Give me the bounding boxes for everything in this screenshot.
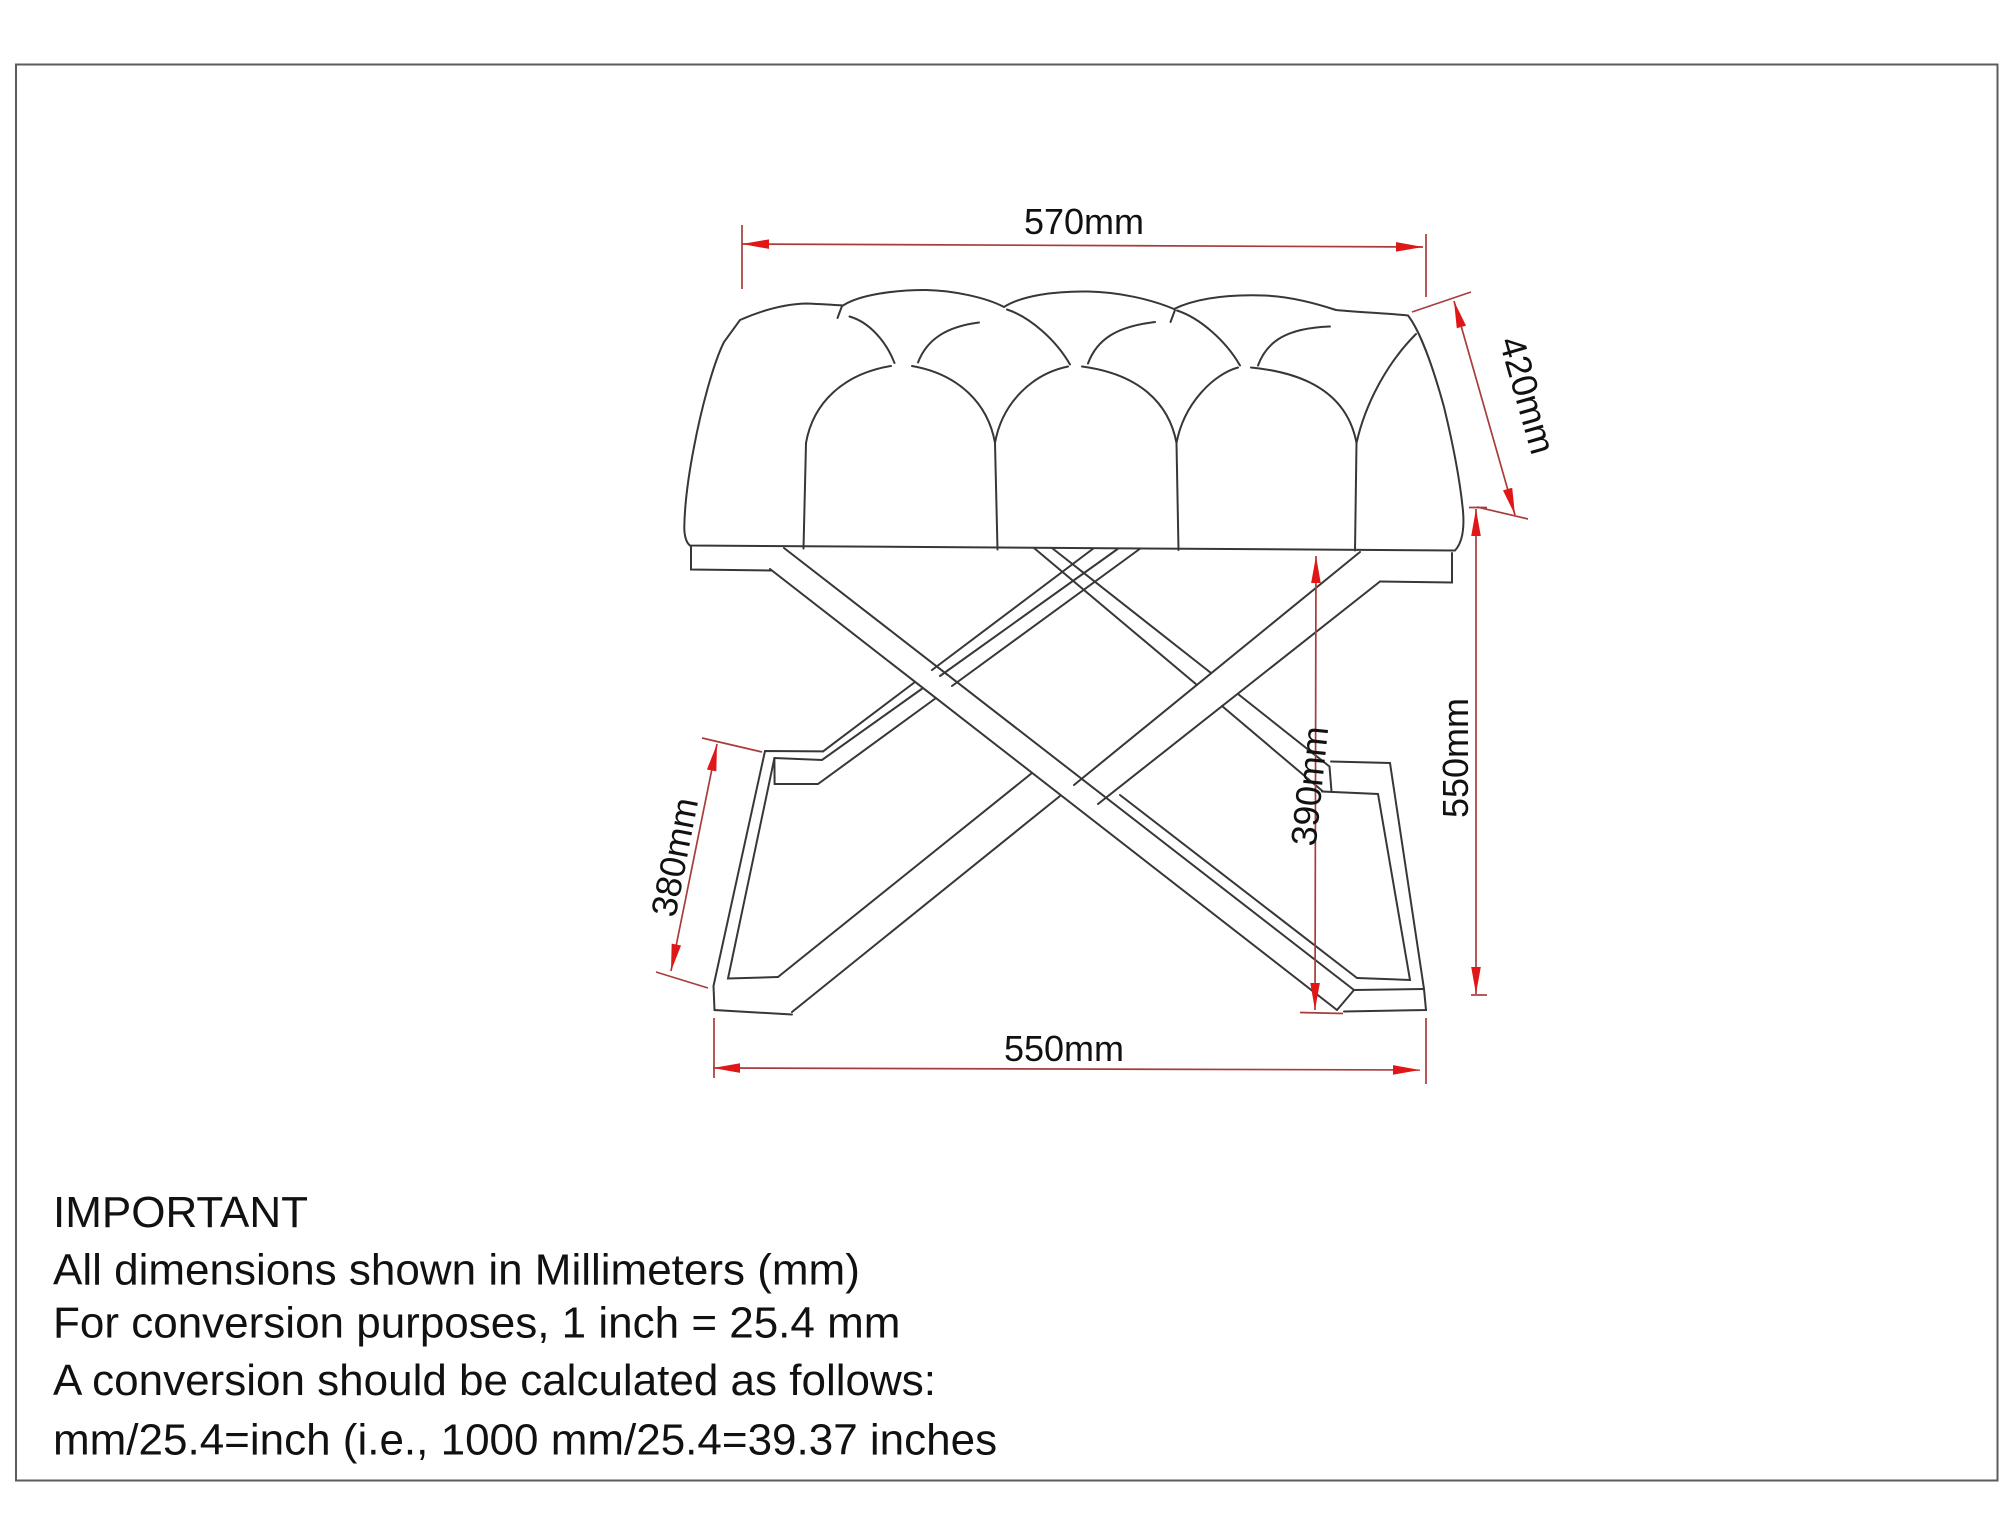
svg-text:IMPORTANT: IMPORTANT xyxy=(53,1188,308,1237)
svg-text:All dimensions shown in Millim: All dimensions shown in Millimeters (mm) xyxy=(53,1246,860,1295)
svg-text:550mm: 550mm xyxy=(1435,698,1476,818)
svg-text:550mm: 550mm xyxy=(1004,1028,1124,1069)
svg-text:570mm: 570mm xyxy=(1024,201,1144,242)
svg-text:For conversion purposes, 1 inc: For conversion purposes, 1 inch = 25.4 m… xyxy=(53,1299,900,1348)
svg-text:mm/25.4=inch (i.e., 1000 mm/25: mm/25.4=inch (i.e., 1000 mm/25.4=39.37 i… xyxy=(53,1416,997,1465)
svg-text:A conversion should be calcula: A conversion should be calculated as fol… xyxy=(53,1356,936,1405)
